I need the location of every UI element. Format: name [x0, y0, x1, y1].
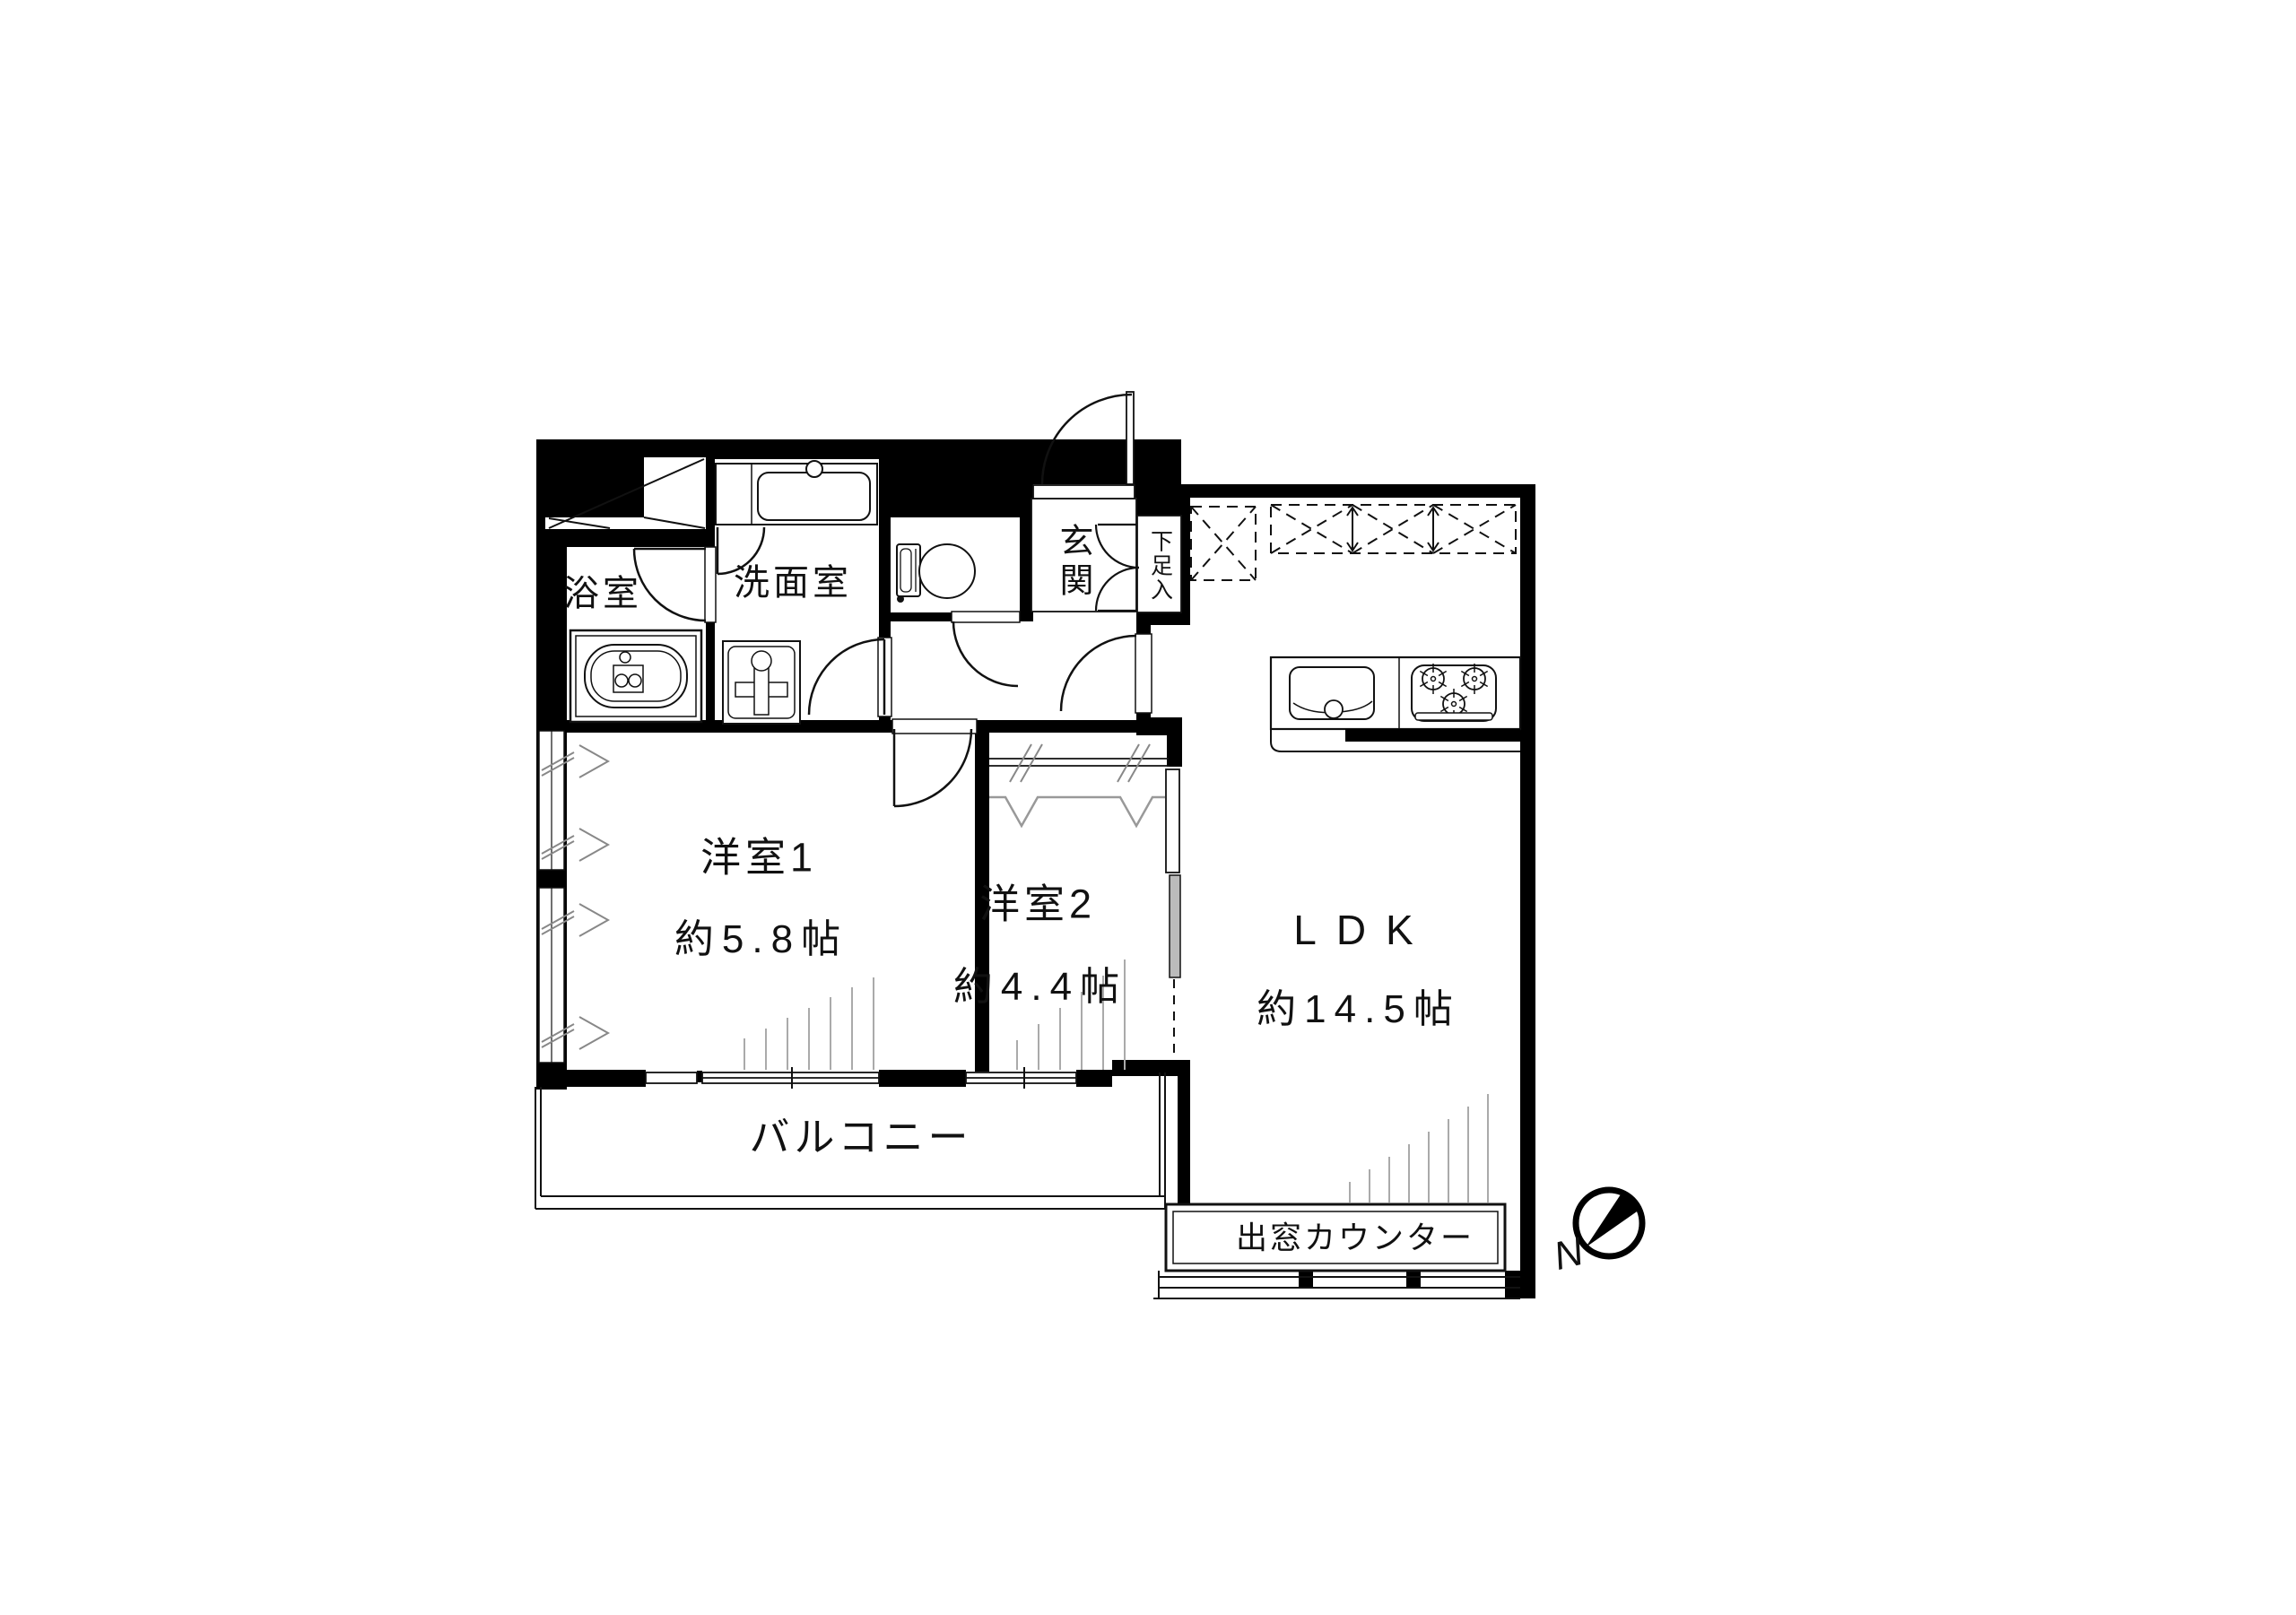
room-label-washroom: 洗面室 — [734, 565, 852, 601]
room-area-bedroom1: 約5.8帖 — [674, 920, 848, 959]
sliding-partition — [1165, 767, 1183, 1060]
folding-door-line — [989, 797, 1169, 826]
ldk-door-arc — [1061, 636, 1136, 711]
toilet — [897, 544, 975, 603]
floorplan-page: 浴室 洗面室 玄関 下足入 洋室1 約5.8帖 洋室2 約4.4帖 LDK 約1… — [0, 0, 2296, 1615]
bedroom1-hatch — [744, 977, 874, 1070]
room-label-entrance: 玄関 — [1056, 523, 1090, 602]
vanity-faucet — [806, 461, 822, 477]
sliding-panel-2 — [1170, 875, 1180, 977]
room-label-shoe-cabinet: 下足入 — [1149, 530, 1171, 603]
room-area-bedroom2: 約4.4帖 — [953, 968, 1127, 1007]
counter-stub-wall — [1345, 729, 1520, 742]
balcony-windows — [646, 1067, 1076, 1089]
cupboard-arrows — [1347, 508, 1439, 551]
ldk-hatch — [1350, 1094, 1488, 1203]
bathtub — [570, 630, 701, 722]
bathroom-door-arc — [634, 549, 706, 621]
tub-faucet — [620, 652, 631, 663]
room-label-bedroom2: 洋室2 — [979, 884, 1096, 925]
entrance-door-leaf — [1126, 392, 1134, 484]
grill-slot — [1415, 713, 1492, 720]
room-label-bathroom: 浴室 — [563, 576, 642, 612]
toilet-door-arc — [953, 621, 1018, 686]
kitchen-sink — [1290, 667, 1374, 719]
kitchen — [1191, 505, 1520, 751]
sliding-panel-1 — [1166, 769, 1179, 873]
vanity-sink — [716, 461, 877, 525]
room-area-ldk: 約14.5帖 — [1257, 990, 1461, 1029]
room-label-ldk: LDK — [1293, 909, 1432, 951]
room-label-balcony: バルコニー — [749, 1117, 972, 1158]
gas-stove — [1412, 664, 1496, 721]
left-wall-windows — [539, 731, 608, 1063]
room-label-bedroom1: 洋室1 — [700, 838, 817, 878]
compass-icon — [1576, 1190, 1642, 1256]
washing-machine-pan — [723, 641, 800, 724]
washroom-door-arc — [809, 639, 884, 715]
bedroom2-closet — [989, 744, 1169, 826]
entrance-threshold — [1033, 485, 1135, 499]
bedroom1-door-arc — [894, 729, 971, 806]
room-label-bay-window: 出窓カウンター — [1236, 1223, 1474, 1255]
floorplan-drawing — [0, 0, 2296, 1615]
